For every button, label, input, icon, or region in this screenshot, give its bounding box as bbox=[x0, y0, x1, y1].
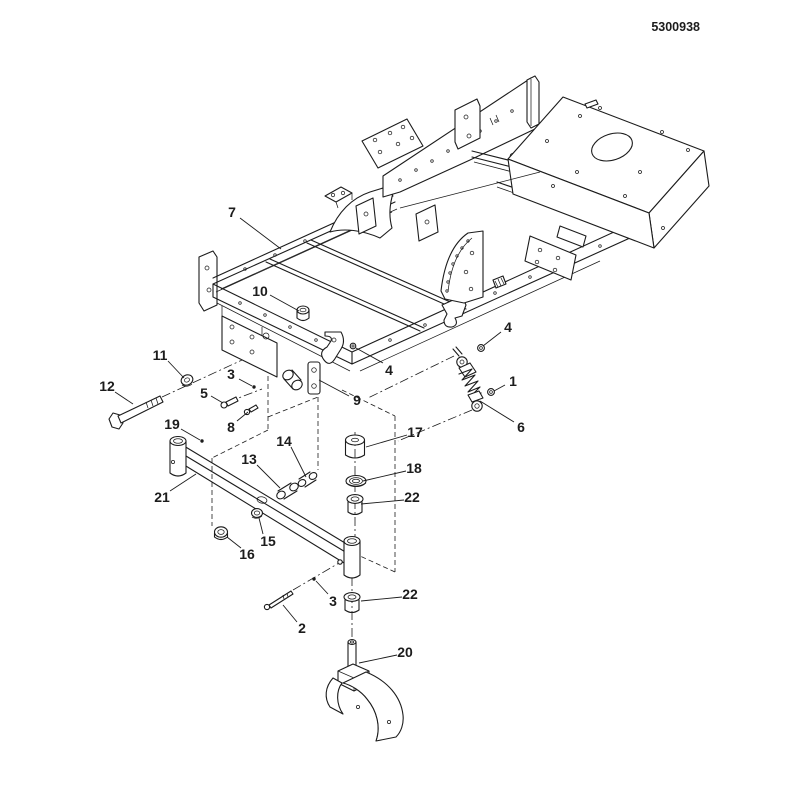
callout-4: 4 bbox=[385, 362, 393, 378]
callout-5: 5 bbox=[200, 385, 208, 401]
callout-7: 7 bbox=[228, 204, 236, 220]
fastener-19 bbox=[200, 439, 203, 442]
callout-22: 22 bbox=[402, 586, 418, 602]
callout-leader-3 bbox=[239, 379, 252, 386]
callout-1: 1 bbox=[509, 373, 517, 389]
callout-2: 2 bbox=[298, 620, 306, 636]
callout-10: 10 bbox=[252, 283, 268, 299]
isolator-block bbox=[493, 276, 506, 288]
callout-3: 3 bbox=[227, 366, 235, 382]
washer-15 bbox=[252, 509, 263, 519]
callout-16: 16 bbox=[239, 546, 255, 562]
callout-leader-5 bbox=[211, 396, 223, 403]
callout-leader-4 bbox=[483, 332, 501, 346]
callout-20: 20 bbox=[397, 644, 413, 660]
nut-1 bbox=[488, 389, 495, 396]
callout-18: 18 bbox=[406, 460, 422, 476]
diagram-page: 710441611125389192113141718221516322220 … bbox=[0, 0, 800, 800]
callout-leader-12 bbox=[115, 392, 133, 404]
caster-arm-21 bbox=[170, 437, 360, 579]
callout-3: 3 bbox=[329, 593, 337, 609]
callout-leader-15 bbox=[259, 518, 263, 534]
callout-11: 11 bbox=[153, 347, 168, 363]
callout-leader-9 bbox=[319, 380, 349, 396]
shock-absorber-6 bbox=[453, 347, 483, 411]
spacer-13 bbox=[275, 482, 299, 501]
tow-tab bbox=[325, 187, 352, 202]
screw-5 bbox=[221, 397, 238, 408]
callout-21: 21 bbox=[154, 489, 170, 505]
callout-15: 15 bbox=[260, 533, 276, 549]
washer-16 bbox=[215, 527, 228, 540]
callout-19: 19 bbox=[164, 416, 180, 432]
callout-leader-22 bbox=[361, 500, 404, 504]
caster-fork-20 bbox=[326, 640, 403, 741]
spacer-14 bbox=[297, 471, 318, 488]
frame-assembly bbox=[199, 76, 709, 392]
callout-leader-1 bbox=[494, 385, 505, 391]
callout-leader-6 bbox=[480, 401, 514, 422]
engine-deck bbox=[400, 97, 709, 248]
callout-14: 14 bbox=[276, 433, 292, 449]
link-plate-9 bbox=[308, 362, 320, 394]
callout-13: 13 bbox=[241, 451, 257, 467]
exploded-parts-diagram: 710441611125389192113141718221516322220 … bbox=[0, 0, 800, 800]
callout-leader-17 bbox=[366, 435, 407, 447]
callout-leader-13 bbox=[257, 465, 280, 488]
callout-leader-3 bbox=[316, 581, 328, 594]
callout-leader-22 bbox=[361, 597, 402, 601]
callout-leader-8 bbox=[237, 412, 248, 421]
callout-leader-7 bbox=[240, 218, 281, 249]
callout-leader-21 bbox=[170, 474, 196, 491]
callout-leader-20 bbox=[359, 655, 397, 663]
document-number: 5300938 bbox=[651, 20, 700, 34]
nut-4-upper bbox=[350, 343, 356, 349]
callout-12: 12 bbox=[99, 378, 115, 394]
callout-9: 9 bbox=[353, 392, 361, 408]
callout-4: 4 bbox=[504, 319, 512, 335]
fastener-3-lower bbox=[312, 577, 315, 580]
callout-leader-2 bbox=[283, 605, 297, 622]
callout-leader-11 bbox=[168, 361, 184, 378]
callout-17: 17 bbox=[407, 424, 423, 440]
callout-leader-14 bbox=[291, 447, 306, 477]
bushing-10 bbox=[297, 306, 309, 321]
fastener-3-upper bbox=[252, 385, 255, 388]
callout-8: 8 bbox=[227, 419, 235, 435]
front-left-corner-post bbox=[199, 251, 217, 311]
callout-22: 22 bbox=[404, 489, 420, 505]
callout-6: 6 bbox=[517, 419, 525, 435]
bolt-2 bbox=[264, 591, 293, 610]
callout-leader-10 bbox=[270, 295, 299, 311]
sector-plate bbox=[441, 231, 483, 303]
floor-cross-braces bbox=[266, 240, 466, 331]
bolt-12 bbox=[109, 396, 163, 429]
callout-leader-18 bbox=[363, 471, 406, 481]
wall-tower bbox=[527, 76, 539, 128]
